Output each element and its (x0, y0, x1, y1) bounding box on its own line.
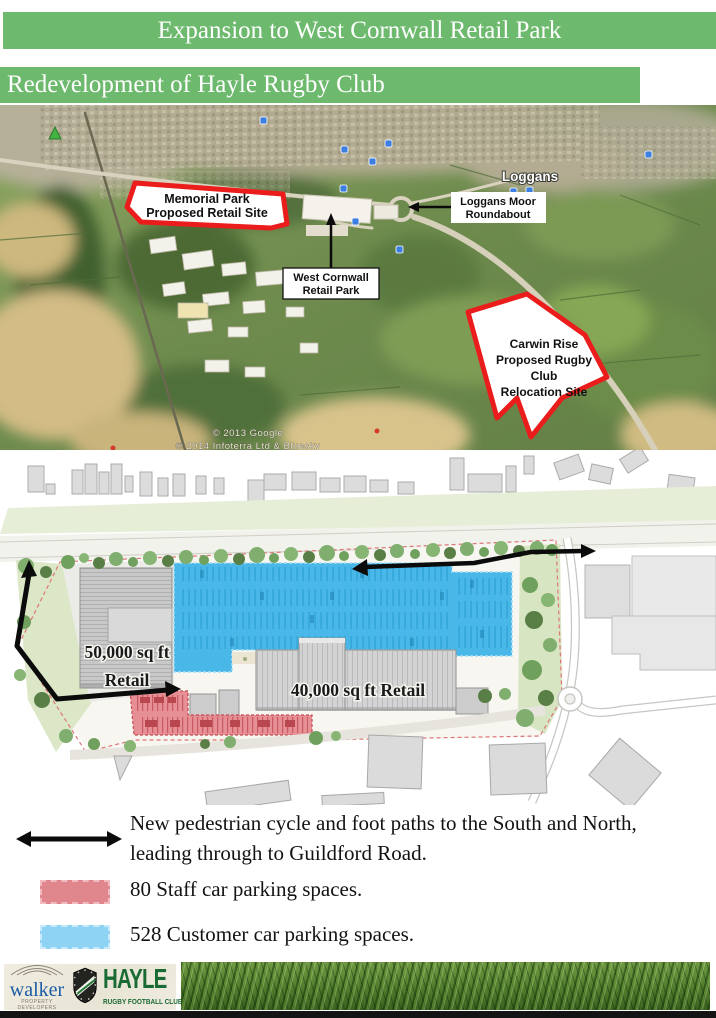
hayle-wordmark: HAYLE RUGBY FOOTBALL CLUB (103, 967, 189, 1008)
carwin-label-line4: Relocation Site (501, 385, 588, 399)
aerial-map: Loggans Memorial Park Proposed Retail Si… (0, 105, 716, 450)
map-red-marker-2 (375, 429, 380, 434)
memorial-park-label-line2: Proposed Retail Site (146, 206, 268, 220)
legend-paths-line2: leading through to Guildford Road. (130, 838, 710, 868)
page-title: Expansion to West Cornwall Retail Park (158, 17, 562, 45)
map-place-label: Loggans (502, 169, 558, 184)
aerial-map-graphic: Loggans Memorial Park Proposed Retail Si… (0, 105, 716, 450)
arrowhead-right-icon (107, 831, 122, 847)
walker-name: walker (9, 981, 65, 999)
hayle-club-name: HAYLE (103, 965, 166, 993)
roundabout-label-line1: Loggans Moor (460, 196, 536, 208)
map-copyright-line2: © 2014 Infoterra Ltd & Bluesky (176, 441, 321, 450)
retail-park-label-line1: West Cornwall (293, 272, 369, 284)
legend-customer-swatch (40, 925, 110, 949)
bottom-bar (0, 1011, 716, 1018)
arrowhead-left-icon (16, 831, 31, 847)
retail-50k-label-line1: 50,000 sq ft (84, 642, 169, 662)
walker-logo: walker PROPERTY DEVELOPERS (9, 963, 65, 1011)
retail-park-label-line2: Retail Park (303, 285, 361, 297)
retail-40k-label: 40,000 sq ft Retail (291, 680, 425, 700)
retail-50k-label-line2: Retail (105, 670, 150, 690)
carwin-label-line1: Carwin Rise (510, 337, 579, 351)
plan-roundabout (565, 694, 575, 704)
staff-parking-bays-2 (140, 717, 308, 733)
legend-staff-text: 80 Staff car parking spaces. (130, 877, 362, 902)
page: Expansion to West Cornwall Retail Park R… (0, 0, 716, 1018)
site-plan: 50,000 sq ft Retail 40,000 sq ft Retail (0, 450, 716, 805)
main-title-banner: Expansion to West Cornwall Retail Park (3, 12, 716, 49)
footer-logo-panel: walker PROPERTY DEVELOPERS HAYLE RUGBY F… (4, 964, 176, 1010)
legend-path-arrow (14, 828, 124, 855)
carwin-label-line3: Club (531, 369, 558, 383)
memorial-park-label-line1: Memorial Park (164, 192, 250, 206)
hayle-crest-icon (71, 966, 99, 1009)
page-subtitle: Redevelopment of Hayle Rugby Club (7, 71, 385, 99)
legend-customer-text: 528 Customer car parking spaces. (130, 922, 414, 947)
roundabout-label-line2: Roundabout (466, 209, 531, 221)
carwin-label-line2: Proposed Rugby (496, 353, 592, 367)
legend-staff-swatch (40, 880, 110, 904)
walker-arc-icon (9, 963, 65, 976)
legend-paths-line1: New pedestrian cycle and foot paths to t… (130, 808, 710, 838)
legend-paths-text: New pedestrian cycle and foot paths to t… (130, 808, 710, 868)
map-copyright-line1: © 2013 Google (213, 428, 284, 439)
hayle-club-subtitle: RUGBY FOOTBALL CLUB (103, 999, 183, 1006)
subtitle-banner: Redevelopment of Hayle Rugby Club (0, 67, 640, 103)
plan-east-verge (518, 544, 562, 734)
site-plan-graphic: 50,000 sq ft Retail 40,000 sq ft Retail (0, 450, 716, 805)
grass-photo-strip (181, 962, 710, 1010)
